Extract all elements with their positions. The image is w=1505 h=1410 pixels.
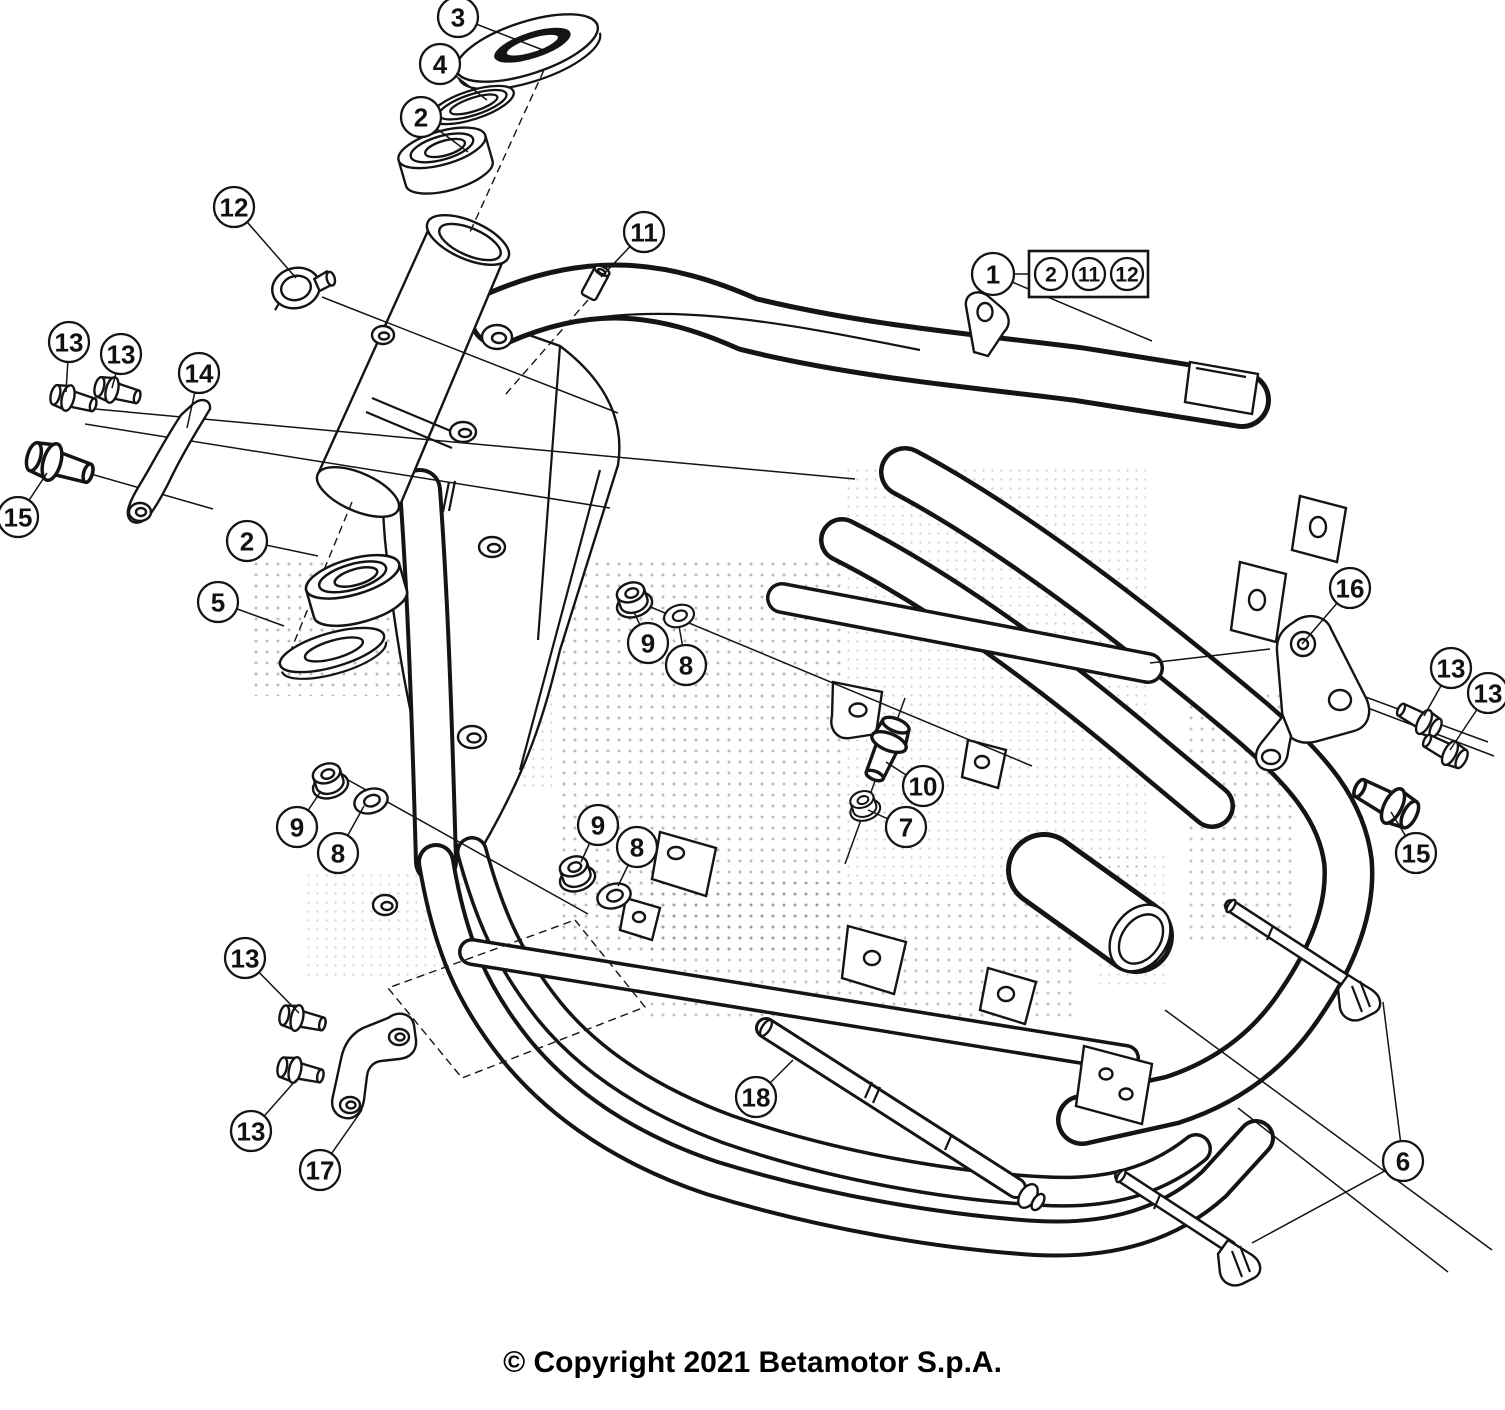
bolt-part bbox=[275, 1054, 326, 1089]
svg-text:8: 8 bbox=[679, 650, 693, 680]
svg-text:8: 8 bbox=[630, 832, 644, 862]
callout-12: 12 bbox=[214, 187, 254, 227]
callout-13: 13 bbox=[49, 322, 89, 362]
callout-12: 12 bbox=[1111, 258, 1143, 290]
callout-13: 13 bbox=[1431, 648, 1471, 688]
svg-text:10: 10 bbox=[909, 771, 938, 801]
nut-part bbox=[306, 759, 351, 803]
callout-5: 5 bbox=[198, 582, 238, 622]
callout-11: 11 bbox=[624, 212, 664, 252]
svg-text:13: 13 bbox=[231, 943, 260, 973]
svg-text:8: 8 bbox=[331, 838, 345, 868]
svg-text:11: 11 bbox=[630, 217, 658, 247]
callout-15: 15 bbox=[0, 497, 38, 537]
callout-2: 2 bbox=[1035, 258, 1067, 290]
svg-text:2: 2 bbox=[1045, 264, 1057, 287]
svg-text:4: 4 bbox=[433, 49, 448, 79]
callout-14: 14 bbox=[179, 353, 219, 393]
svg-text:12: 12 bbox=[1115, 264, 1138, 287]
callout-10: 10 bbox=[903, 766, 943, 806]
svg-text:13: 13 bbox=[107, 339, 136, 369]
svg-text:15: 15 bbox=[1402, 838, 1431, 868]
svg-text:2: 2 bbox=[240, 526, 254, 556]
bracket-17-part bbox=[332, 1014, 416, 1119]
callout-13: 13 bbox=[1468, 673, 1505, 713]
callout-16: 16 bbox=[1330, 568, 1370, 608]
callout-8: 8 bbox=[666, 645, 706, 685]
svg-text:15: 15 bbox=[4, 502, 33, 532]
svg-text:13: 13 bbox=[237, 1116, 266, 1146]
callout-4: 4 bbox=[420, 44, 460, 84]
svg-text:13: 13 bbox=[1474, 678, 1503, 708]
svg-text:13: 13 bbox=[55, 327, 84, 357]
bolt-part bbox=[92, 373, 143, 409]
callout-9: 9 bbox=[578, 805, 618, 845]
callout-6: 6 bbox=[1383, 1141, 1423, 1181]
svg-text:11: 11 bbox=[1078, 264, 1101, 287]
callout-13: 13 bbox=[101, 334, 141, 374]
frame-exploded-diagram: 3421211131314152598161313107989815131317… bbox=[0, 0, 1505, 1410]
svg-text:7: 7 bbox=[899, 812, 913, 842]
bolt-part bbox=[48, 381, 99, 417]
svg-text:14: 14 bbox=[185, 358, 214, 388]
callout-2: 2 bbox=[227, 521, 267, 561]
copyright-text: © Copyright 2021 Betamotor S.p.A. bbox=[0, 1346, 1505, 1380]
callout-11: 11 bbox=[1073, 258, 1105, 290]
svg-text:1: 1 bbox=[986, 259, 1000, 289]
callout-17: 17 bbox=[300, 1150, 340, 1190]
clamp-part bbox=[266, 258, 340, 314]
callout-9: 9 bbox=[628, 623, 668, 663]
svg-text:9: 9 bbox=[591, 810, 605, 840]
flange-bolt-part bbox=[22, 437, 97, 492]
callout-2: 2 bbox=[401, 97, 441, 137]
callout-8: 8 bbox=[617, 827, 657, 867]
leader-line bbox=[1252, 1161, 1403, 1243]
svg-text:12: 12 bbox=[220, 192, 249, 222]
callout-15: 15 bbox=[1396, 833, 1436, 873]
parts-diagram-page: 3421211131314152598161313107989815131317… bbox=[0, 0, 1505, 1410]
leader-line bbox=[1383, 1002, 1403, 1161]
callout-1: 1 bbox=[972, 253, 1014, 295]
svg-text:16: 16 bbox=[1336, 573, 1365, 603]
callout-7: 7 bbox=[886, 807, 926, 847]
callout-18: 18 bbox=[736, 1077, 776, 1117]
svg-text:6: 6 bbox=[1396, 1146, 1410, 1176]
svg-text:17: 17 bbox=[306, 1155, 335, 1185]
callout-3: 3 bbox=[438, 0, 478, 37]
callout-9: 9 bbox=[277, 807, 317, 847]
bolt-part bbox=[277, 1002, 328, 1037]
svg-text:13: 13 bbox=[1437, 653, 1466, 683]
svg-text:9: 9 bbox=[290, 812, 304, 842]
svg-text:5: 5 bbox=[211, 587, 225, 617]
callout-8: 8 bbox=[318, 833, 358, 873]
callout-13: 13 bbox=[225, 938, 265, 978]
washer-part bbox=[351, 784, 391, 817]
svg-text:2: 2 bbox=[414, 102, 428, 132]
callout-13: 13 bbox=[231, 1111, 271, 1151]
svg-text:18: 18 bbox=[742, 1082, 771, 1112]
bolt-part bbox=[1392, 697, 1445, 741]
svg-text:9: 9 bbox=[641, 628, 655, 658]
svg-text:3: 3 bbox=[451, 2, 465, 32]
